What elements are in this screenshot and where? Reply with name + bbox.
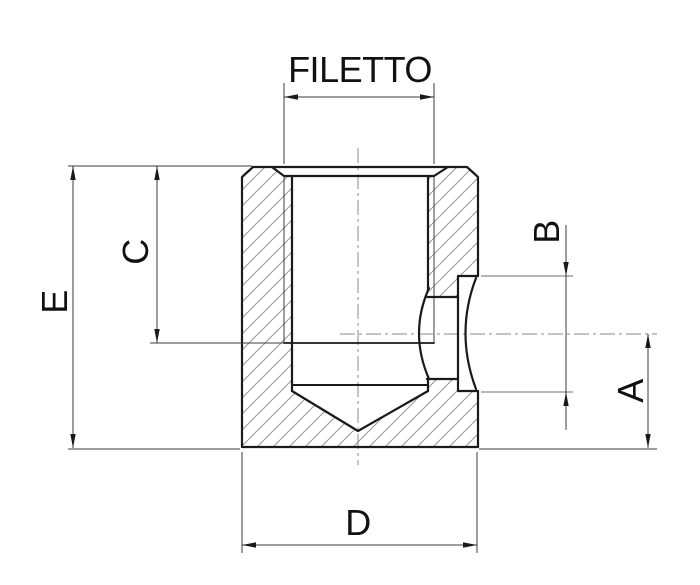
thread-label: FILETTO	[288, 52, 432, 88]
dimension-e	[68, 166, 252, 449]
hatching	[242, 167, 478, 447]
dimension-label-b: B	[529, 220, 565, 244]
dimension-b	[481, 225, 573, 430]
thread-major-lines	[284, 176, 434, 343]
dimension-label-d: D	[345, 505, 371, 541]
dimension-label-a: A	[613, 379, 649, 403]
cross-hole-edges	[427, 297, 458, 379]
dimension-label-e: E	[37, 290, 73, 314]
dimension-filetto	[284, 83, 434, 164]
dimension-label-c: C	[118, 239, 154, 265]
technical-drawing-canvas: FILETTO E C B A D	[0, 0, 700, 585]
